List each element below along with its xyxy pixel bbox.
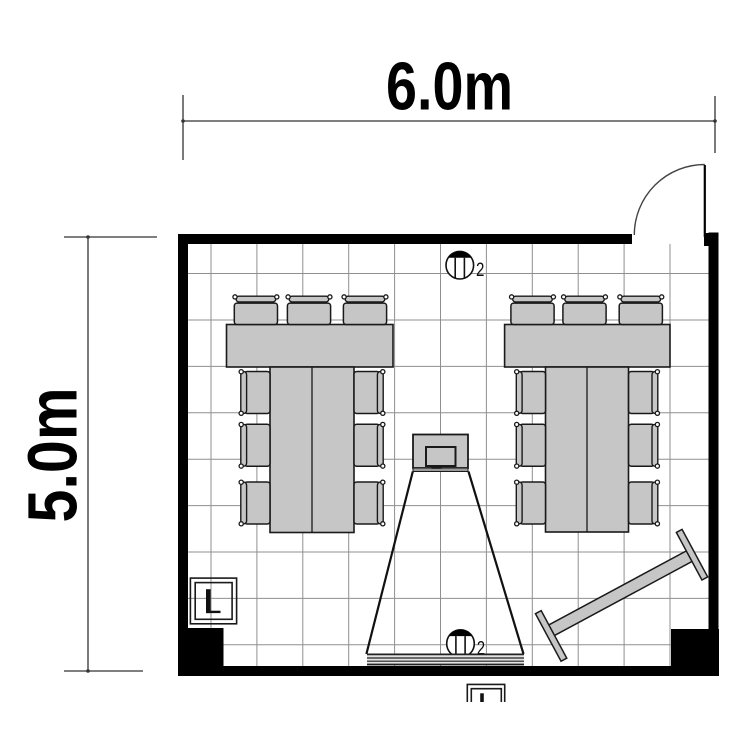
svg-text:6.0m: 6.0m [386, 50, 513, 125]
svg-text:5.0m: 5.0m [14, 388, 92, 523]
